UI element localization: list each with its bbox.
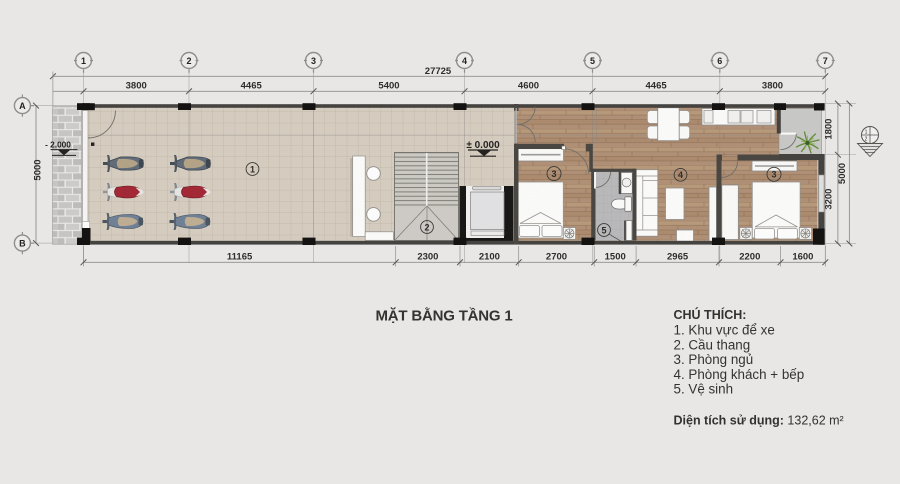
svg-text:± 0.000: ± 0.000 [466, 140, 500, 151]
svg-text:2200: 2200 [739, 252, 760, 263]
svg-text:MẶT BẰNG TẦNG 1: MẶT BẰNG TẦNG 1 [376, 307, 513, 325]
svg-text:5400: 5400 [378, 81, 399, 92]
svg-text:5000: 5000 [33, 159, 44, 180]
svg-text:1: 1 [81, 56, 86, 66]
svg-text:4. Phòng khách + bếp: 4. Phòng khách + bếp [674, 367, 805, 382]
svg-text:3: 3 [311, 56, 316, 66]
svg-text:1800: 1800 [824, 119, 835, 140]
svg-text:2: 2 [865, 137, 868, 143]
svg-text:5000: 5000 [837, 163, 848, 184]
svg-text:5: 5 [601, 225, 606, 235]
svg-text:2: 2 [186, 56, 191, 66]
svg-text:2. Cầu thang: 2. Cầu thang [674, 337, 751, 352]
svg-text:4: 4 [678, 170, 683, 180]
svg-text:CHÚ THÍCH:: CHÚ THÍCH: [674, 307, 747, 322]
svg-text:2965: 2965 [667, 252, 689, 263]
svg-text:5. Vệ sinh: 5. Vệ sinh [674, 382, 734, 397]
svg-text:7: 7 [823, 56, 828, 66]
svg-text:11165: 11165 [227, 252, 253, 263]
svg-text:1600: 1600 [792, 252, 813, 263]
svg-text:3: 3 [551, 169, 556, 179]
svg-text:3800: 3800 [126, 81, 147, 92]
svg-text:Diện tích sử dụng: 132,62 m²: Diện tích sử dụng: 132,62 m² [674, 414, 844, 428]
svg-text:B: B [19, 239, 26, 249]
svg-text:4465: 4465 [241, 81, 263, 92]
svg-text:2: 2 [424, 222, 429, 232]
svg-text:3800: 3800 [762, 81, 783, 92]
svg-text:2100: 2100 [479, 252, 500, 263]
svg-text:1: 1 [865, 130, 868, 136]
svg-text:6: 6 [717, 56, 722, 66]
svg-text:2300: 2300 [417, 252, 438, 263]
svg-text:2700: 2700 [546, 252, 567, 263]
svg-text:1500: 1500 [605, 252, 626, 263]
svg-text:3. Phòng ngủ: 3. Phòng ngủ [674, 352, 754, 367]
svg-text:1. Khu vực để xe: 1. Khu vực để xe [674, 323, 775, 338]
svg-text:27725: 27725 [425, 66, 452, 77]
svg-text:A: A [19, 101, 26, 111]
svg-text:1: 1 [250, 164, 255, 174]
svg-text:- 2.000: - 2.000 [45, 140, 71, 150]
svg-text:4600: 4600 [518, 81, 539, 92]
svg-text:3: 3 [771, 170, 776, 180]
svg-text:3200: 3200 [824, 189, 835, 210]
svg-text:5: 5 [590, 56, 595, 66]
svg-text:4: 4 [462, 56, 467, 66]
svg-text:4465: 4465 [646, 81, 668, 92]
